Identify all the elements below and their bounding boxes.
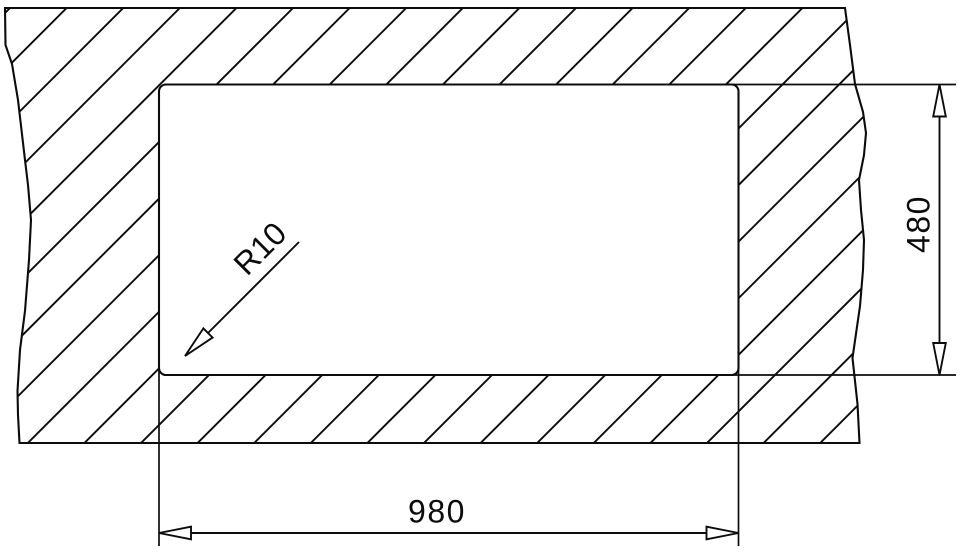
svg-text:480: 480 [901,195,937,253]
svg-text:980: 980 [408,494,466,530]
